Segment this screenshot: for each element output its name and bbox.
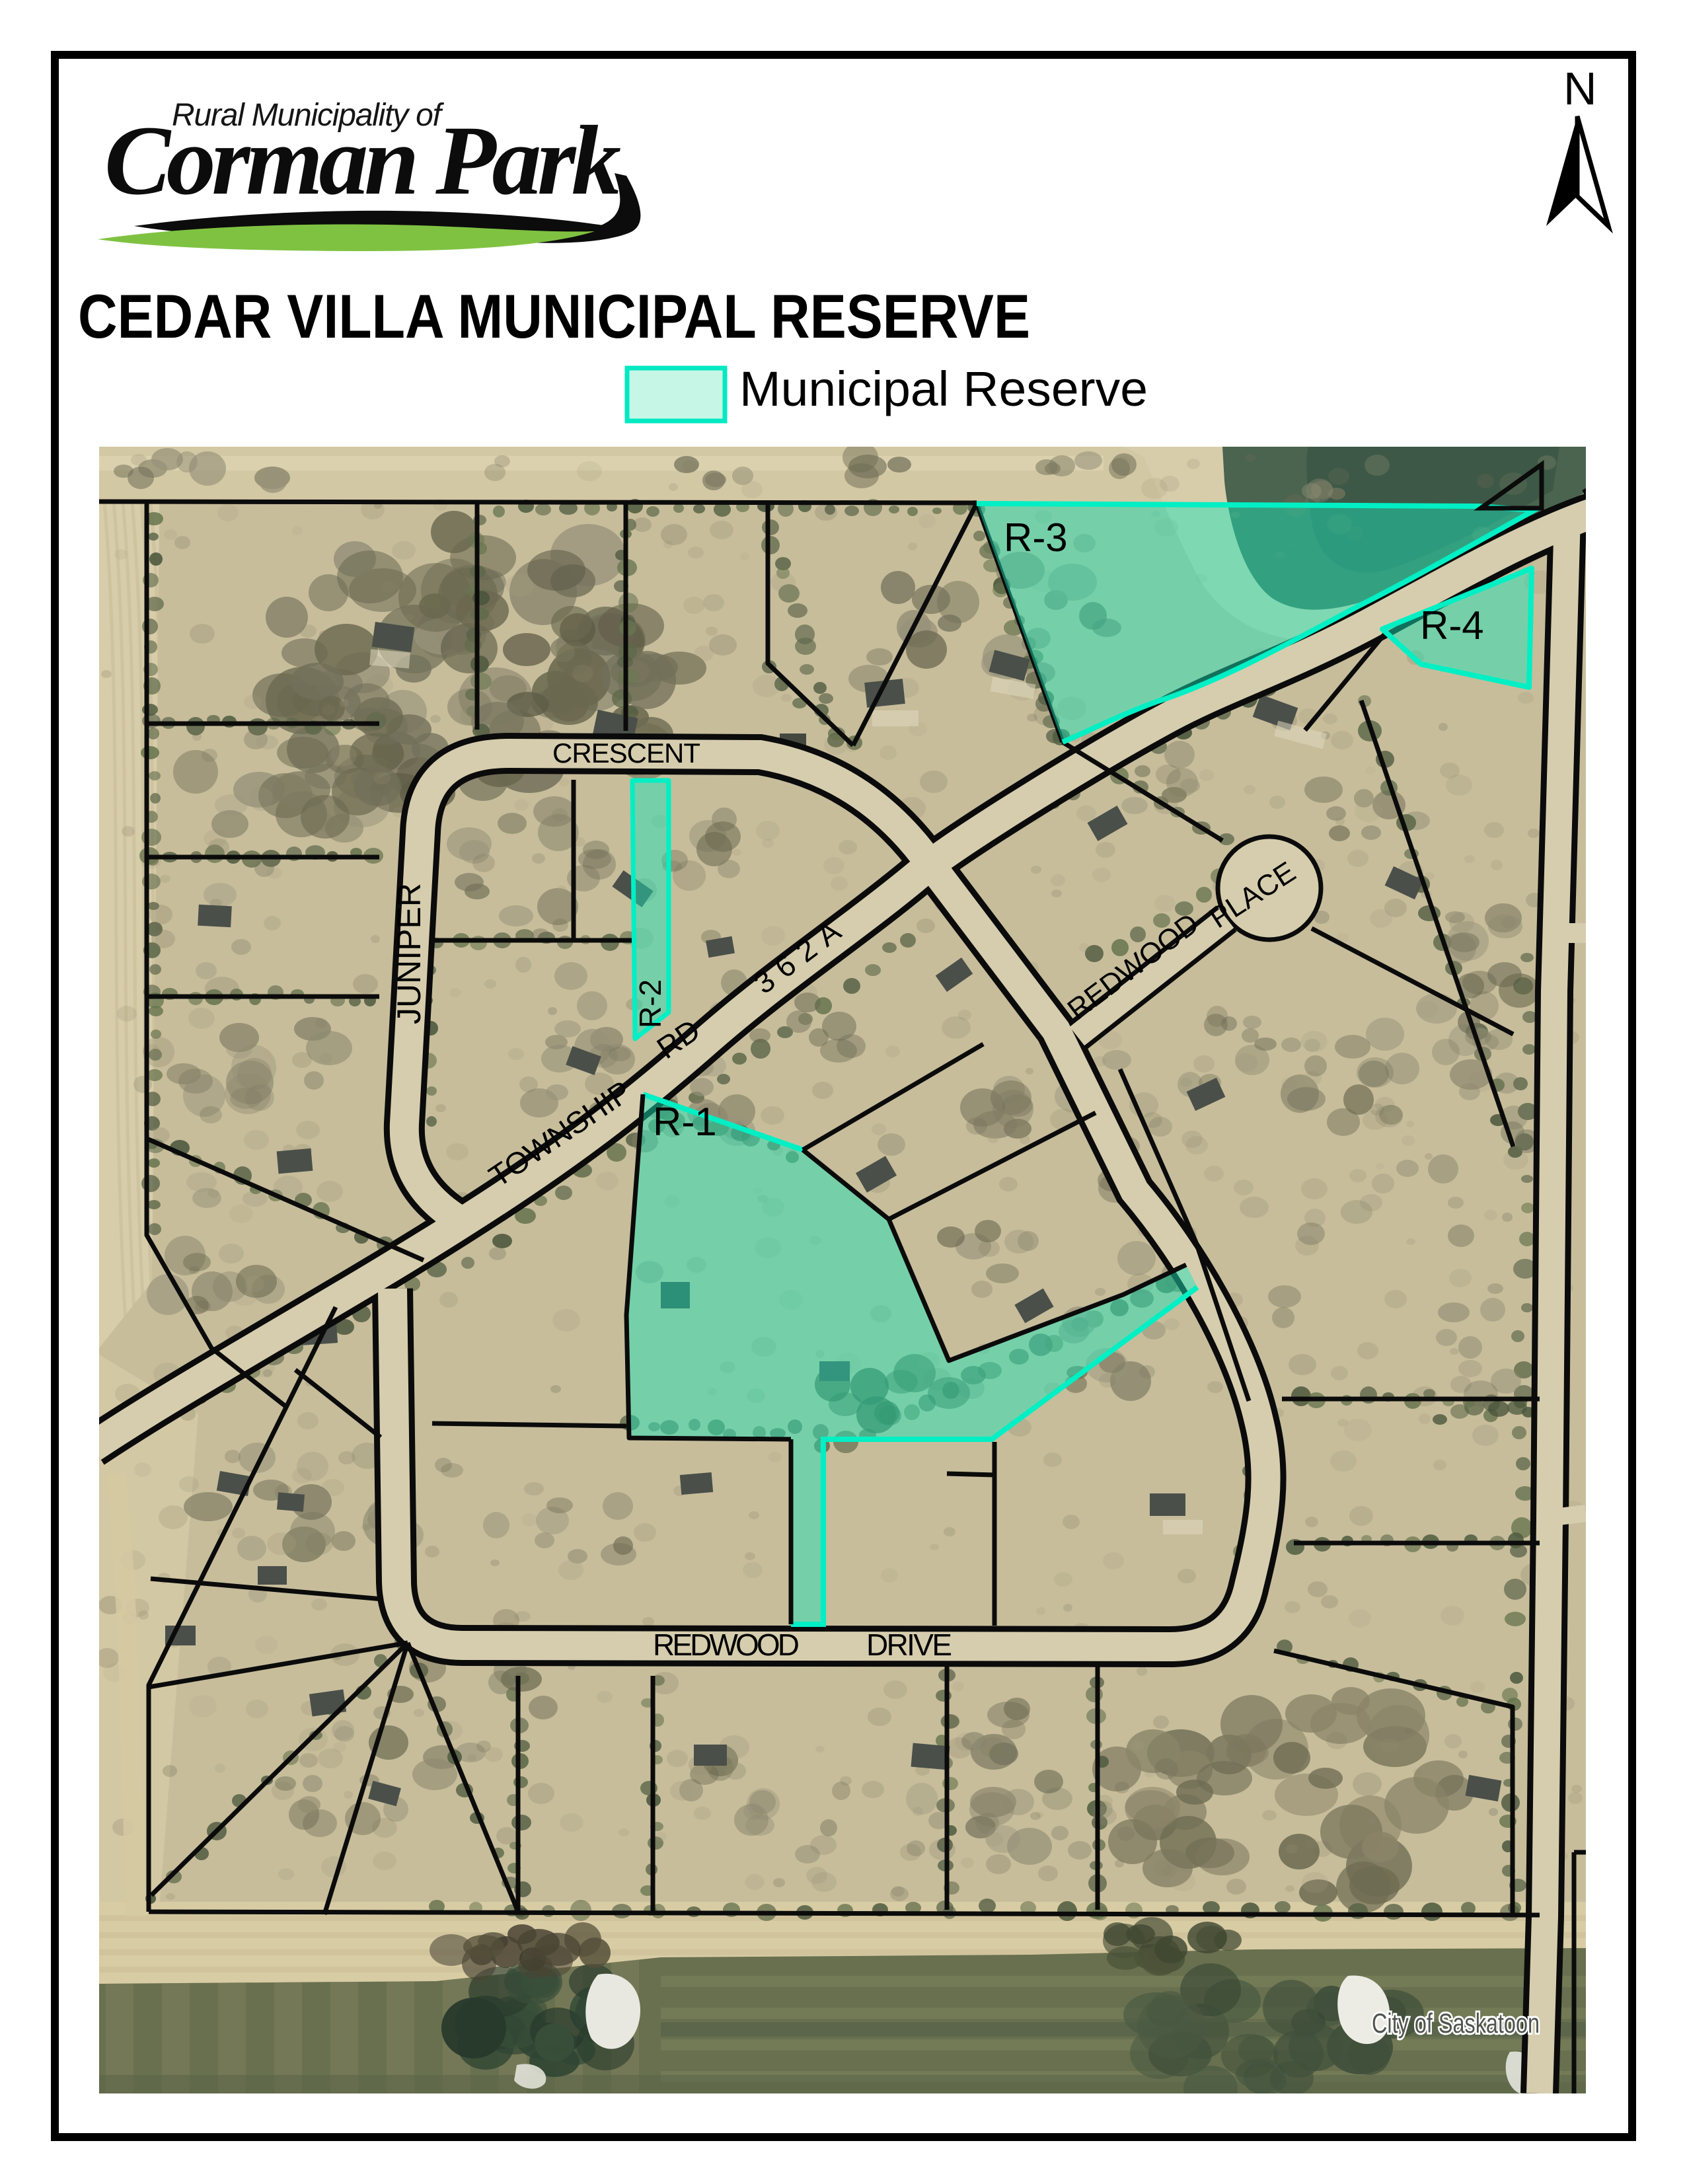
svg-text:R-4: R-4	[1420, 603, 1484, 648]
svg-text:CRESCENT: CRESCENT	[552, 737, 700, 769]
svg-text:R-3: R-3	[1004, 515, 1068, 560]
svg-text:JUNIPER: JUNIPER	[391, 883, 428, 1024]
svg-text:R-1: R-1	[653, 1100, 717, 1144]
svg-text:R-2: R-2	[633, 979, 667, 1028]
svg-text:REDWOOD: REDWOOD	[653, 1628, 800, 1662]
svg-text:N: N	[1563, 63, 1597, 114]
svg-text:Municipal Reserve: Municipal Reserve	[739, 361, 1148, 416]
svg-text:CEDAR VILLA MUNICIPAL RESERVE: CEDAR VILLA MUNICIPAL RESERVE	[78, 282, 1030, 351]
svg-text:Corman Park: Corman Park	[104, 106, 621, 215]
svg-text:DRIVE: DRIVE	[866, 1628, 952, 1662]
svg-text:City of Saskatoon: City of Saskatoon	[1372, 2008, 1540, 2039]
